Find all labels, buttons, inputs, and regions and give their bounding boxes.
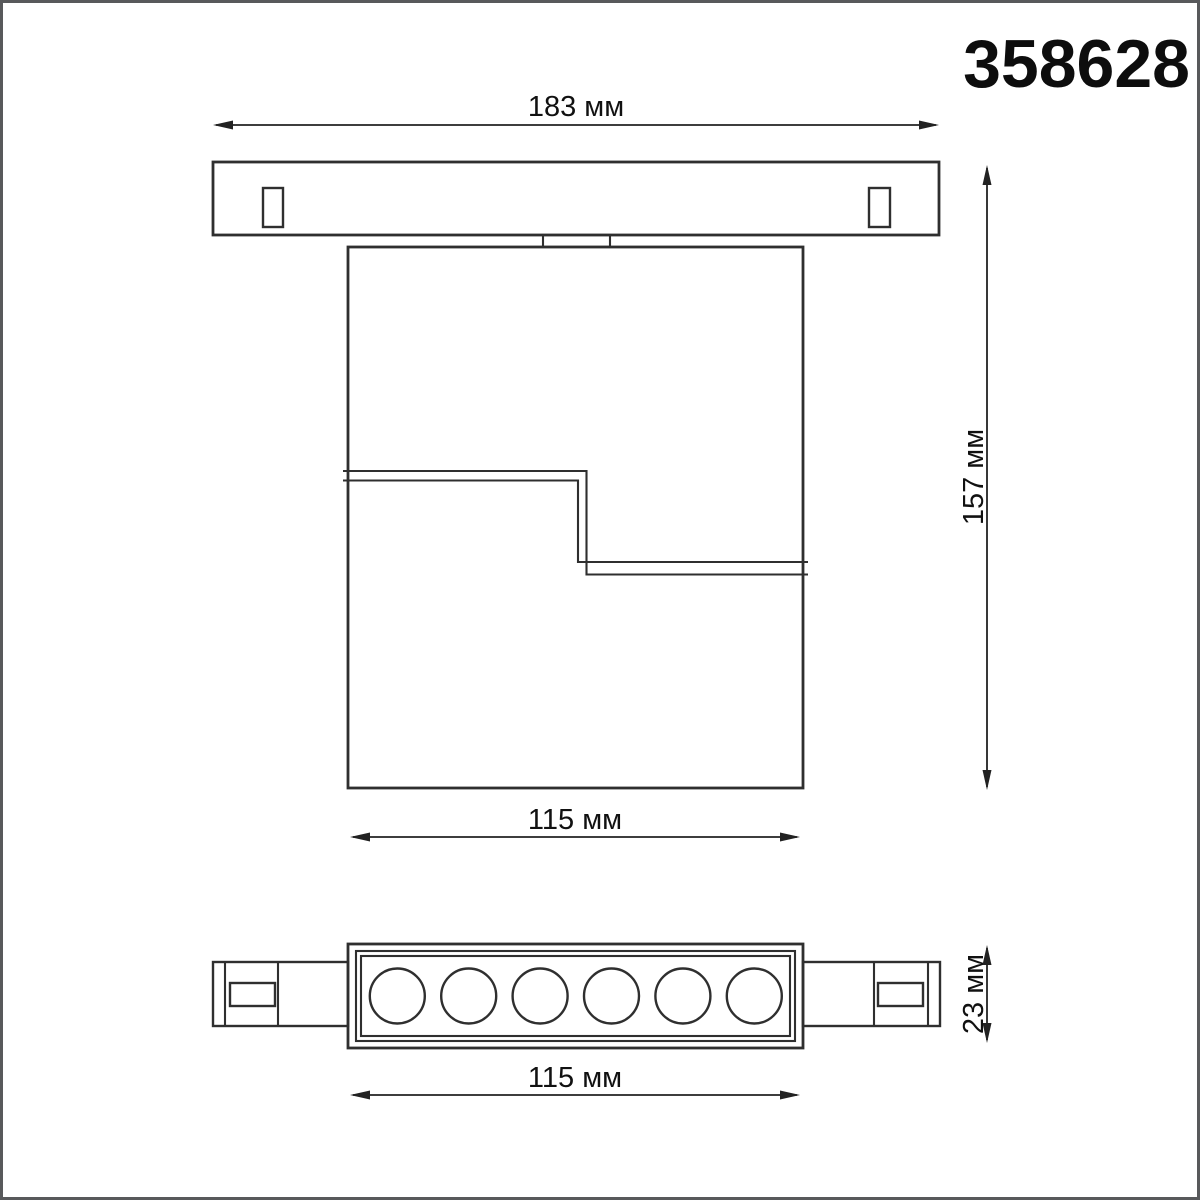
dimension-body-width-bottom: 115 мм (350, 1062, 800, 1100)
led-lens (370, 969, 425, 1024)
side-view (213, 162, 939, 788)
technical-drawing: 183 мм 157 мм 115 мм (0, 0, 1200, 1200)
led-lens (655, 969, 710, 1024)
led-lens (584, 969, 639, 1024)
dimension-label-track-width: 183 мм (528, 91, 624, 123)
track-slot-right (869, 188, 890, 227)
left-contact (230, 983, 275, 1006)
head-inner-border (356, 951, 795, 1041)
drawing-page: 183 мм 157 мм 115 мм (0, 0, 1200, 1200)
image-frame (2, 2, 1199, 1199)
arrowhead-right (780, 833, 800, 842)
led-lens (727, 969, 782, 1024)
arrowhead-left (350, 833, 370, 842)
track-slot-left (263, 188, 283, 227)
body-step-line-outer (343, 471, 808, 575)
dimension-fixture-depth: 23 мм (958, 945, 992, 1043)
product-code: 358628 (963, 26, 1190, 102)
bottom-view (213, 944, 940, 1048)
arrowhead-left (350, 1091, 370, 1100)
arrowhead-bottom (983, 770, 992, 790)
dimension-label-body-width-bottom: 115 мм (528, 1062, 622, 1094)
led-lens (441, 969, 496, 1024)
arrowhead-right (780, 1091, 800, 1100)
arrowhead-right (919, 121, 939, 130)
arrowhead-top (983, 165, 992, 185)
right-contact (878, 983, 923, 1006)
dimension-label-fixture-height: 157 мм (958, 429, 990, 525)
arrowhead-left (213, 121, 233, 130)
dimension-label-body-width-top: 115 мм (528, 804, 622, 836)
right-arm (803, 962, 940, 1026)
dimension-label-fixture-depth: 23 мм (958, 954, 990, 1034)
fixture-body (348, 247, 803, 788)
dimension-body-width-top: 115 мм (350, 804, 800, 842)
led-lens (513, 969, 568, 1024)
track-adapter (543, 235, 610, 247)
body-step-line-inner (343, 481, 808, 563)
dimension-track-width: 183 мм (213, 91, 939, 130)
track-profile (213, 162, 939, 235)
head-outline (348, 944, 803, 1048)
dimension-fixture-height: 157 мм (958, 165, 992, 790)
left-arm (213, 962, 348, 1026)
